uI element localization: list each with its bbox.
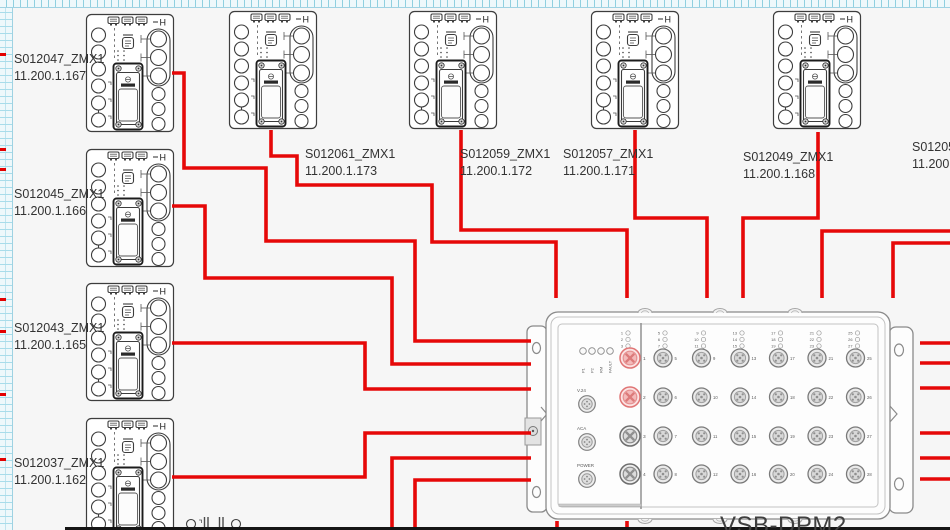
device-label: S012049_ZMX111.200.1.168 [743, 149, 833, 183]
svg-text:V.24: V.24 [577, 388, 586, 393]
svg-text:23: 23 [810, 344, 814, 349]
svg-text:P1: P1 [581, 367, 586, 373]
svg-text:22: 22 [829, 395, 834, 400]
led-fault [607, 348, 614, 355]
svg-text:FAULT: FAULT [608, 360, 613, 373]
svg-text:1: 1 [621, 331, 623, 336]
svg-text:21: 21 [829, 356, 834, 361]
device-label: S012057_ZMX111.200.1.171 [563, 146, 653, 180]
svg-text:19: 19 [771, 344, 775, 349]
device-label: S012037_ZMX111.200.1.162 [14, 455, 104, 489]
led-rm [598, 348, 605, 355]
device-S012049_ZMX1[interactable] [774, 12, 861, 129]
svg-text:4: 4 [643, 472, 646, 478]
led-p1 [580, 348, 587, 355]
wire[interactable] [172, 433, 531, 477]
svg-text:19: 19 [790, 434, 795, 439]
device-label: S012061_ZMX111.200.1.173 [305, 146, 395, 180]
device-label: S012045_ZMX111.200.1.166 [14, 186, 104, 220]
wire[interactable] [172, 343, 531, 389]
wire[interactable] [392, 458, 531, 530]
device-label: S012059_ZMX111.200.1.172 [460, 146, 550, 180]
aux-port-power[interactable] [579, 471, 596, 488]
svg-text:20: 20 [790, 472, 795, 477]
switch-title: VSB-DPM2 [720, 512, 847, 530]
svg-text:27: 27 [848, 344, 852, 349]
device-S012059_ZMX1[interactable] [410, 12, 497, 129]
svg-text:17: 17 [771, 331, 775, 336]
device-label-partial: S012053 11.200.1 [912, 139, 950, 173]
svg-text:6: 6 [658, 337, 660, 342]
svg-text:14: 14 [752, 395, 757, 400]
svg-text:10: 10 [713, 395, 718, 400]
svg-text:3: 3 [643, 434, 646, 440]
svg-text:3: 3 [621, 344, 623, 349]
svg-text:15: 15 [733, 344, 737, 349]
svg-text:28: 28 [867, 472, 872, 477]
svg-text:RM: RM [599, 367, 604, 373]
svg-text:23: 23 [829, 434, 834, 439]
device-S012061_ZMX1[interactable] [230, 12, 317, 129]
svg-text:25: 25 [848, 331, 852, 336]
svg-text:12: 12 [713, 472, 718, 477]
svg-text:18: 18 [771, 337, 775, 342]
svg-text:26: 26 [848, 337, 852, 342]
device-S012057_ZMX1[interactable] [592, 12, 679, 129]
device-label: S012047_ZMX111.200.1.167 [14, 51, 104, 85]
svg-text:18: 18 [790, 395, 795, 400]
svg-text:ACA: ACA [577, 426, 586, 431]
device-label: S012043_ZMX111.200.1.165 [14, 320, 104, 354]
wire[interactable] [415, 480, 531, 530]
svg-text:15: 15 [752, 434, 757, 439]
svg-text:11: 11 [713, 434, 718, 439]
led-p2 [589, 348, 596, 355]
svg-text:1: 1 [643, 356, 646, 362]
svg-text:26: 26 [867, 395, 872, 400]
svg-text:17: 17 [790, 356, 795, 361]
svg-text:7: 7 [658, 344, 660, 349]
svg-text:P2: P2 [590, 367, 595, 373]
svg-text:2: 2 [621, 337, 623, 342]
svg-text:13: 13 [752, 356, 757, 361]
svg-text:11: 11 [694, 344, 698, 349]
aux-port-aca[interactable] [579, 434, 596, 451]
svg-text:27: 27 [867, 434, 872, 439]
svg-text:22: 22 [810, 337, 814, 342]
svg-text:5: 5 [658, 331, 660, 336]
svg-text:POWER: POWER [577, 463, 595, 468]
svg-text:16: 16 [752, 472, 757, 477]
wiring-diagram: H [0, 0, 950, 530]
aux-port-v24[interactable] [579, 396, 596, 413]
svg-text:24: 24 [829, 472, 834, 477]
left-mounting-bracket [525, 326, 547, 512]
vsb-switch[interactable]: P1P2RMFAULTV.24ACAPOWER12345678910111213… [525, 309, 913, 524]
svg-text:9: 9 [696, 331, 698, 336]
wire[interactable] [893, 243, 950, 298]
svg-text:2: 2 [643, 395, 646, 401]
svg-text:25: 25 [867, 356, 872, 361]
wire[interactable] [822, 231, 950, 298]
diagram-canvas[interactable]: H [0, 0, 950, 530]
svg-text:21: 21 [810, 331, 814, 336]
right-mounting-bracket [889, 327, 913, 513]
svg-text:13: 13 [733, 331, 737, 336]
